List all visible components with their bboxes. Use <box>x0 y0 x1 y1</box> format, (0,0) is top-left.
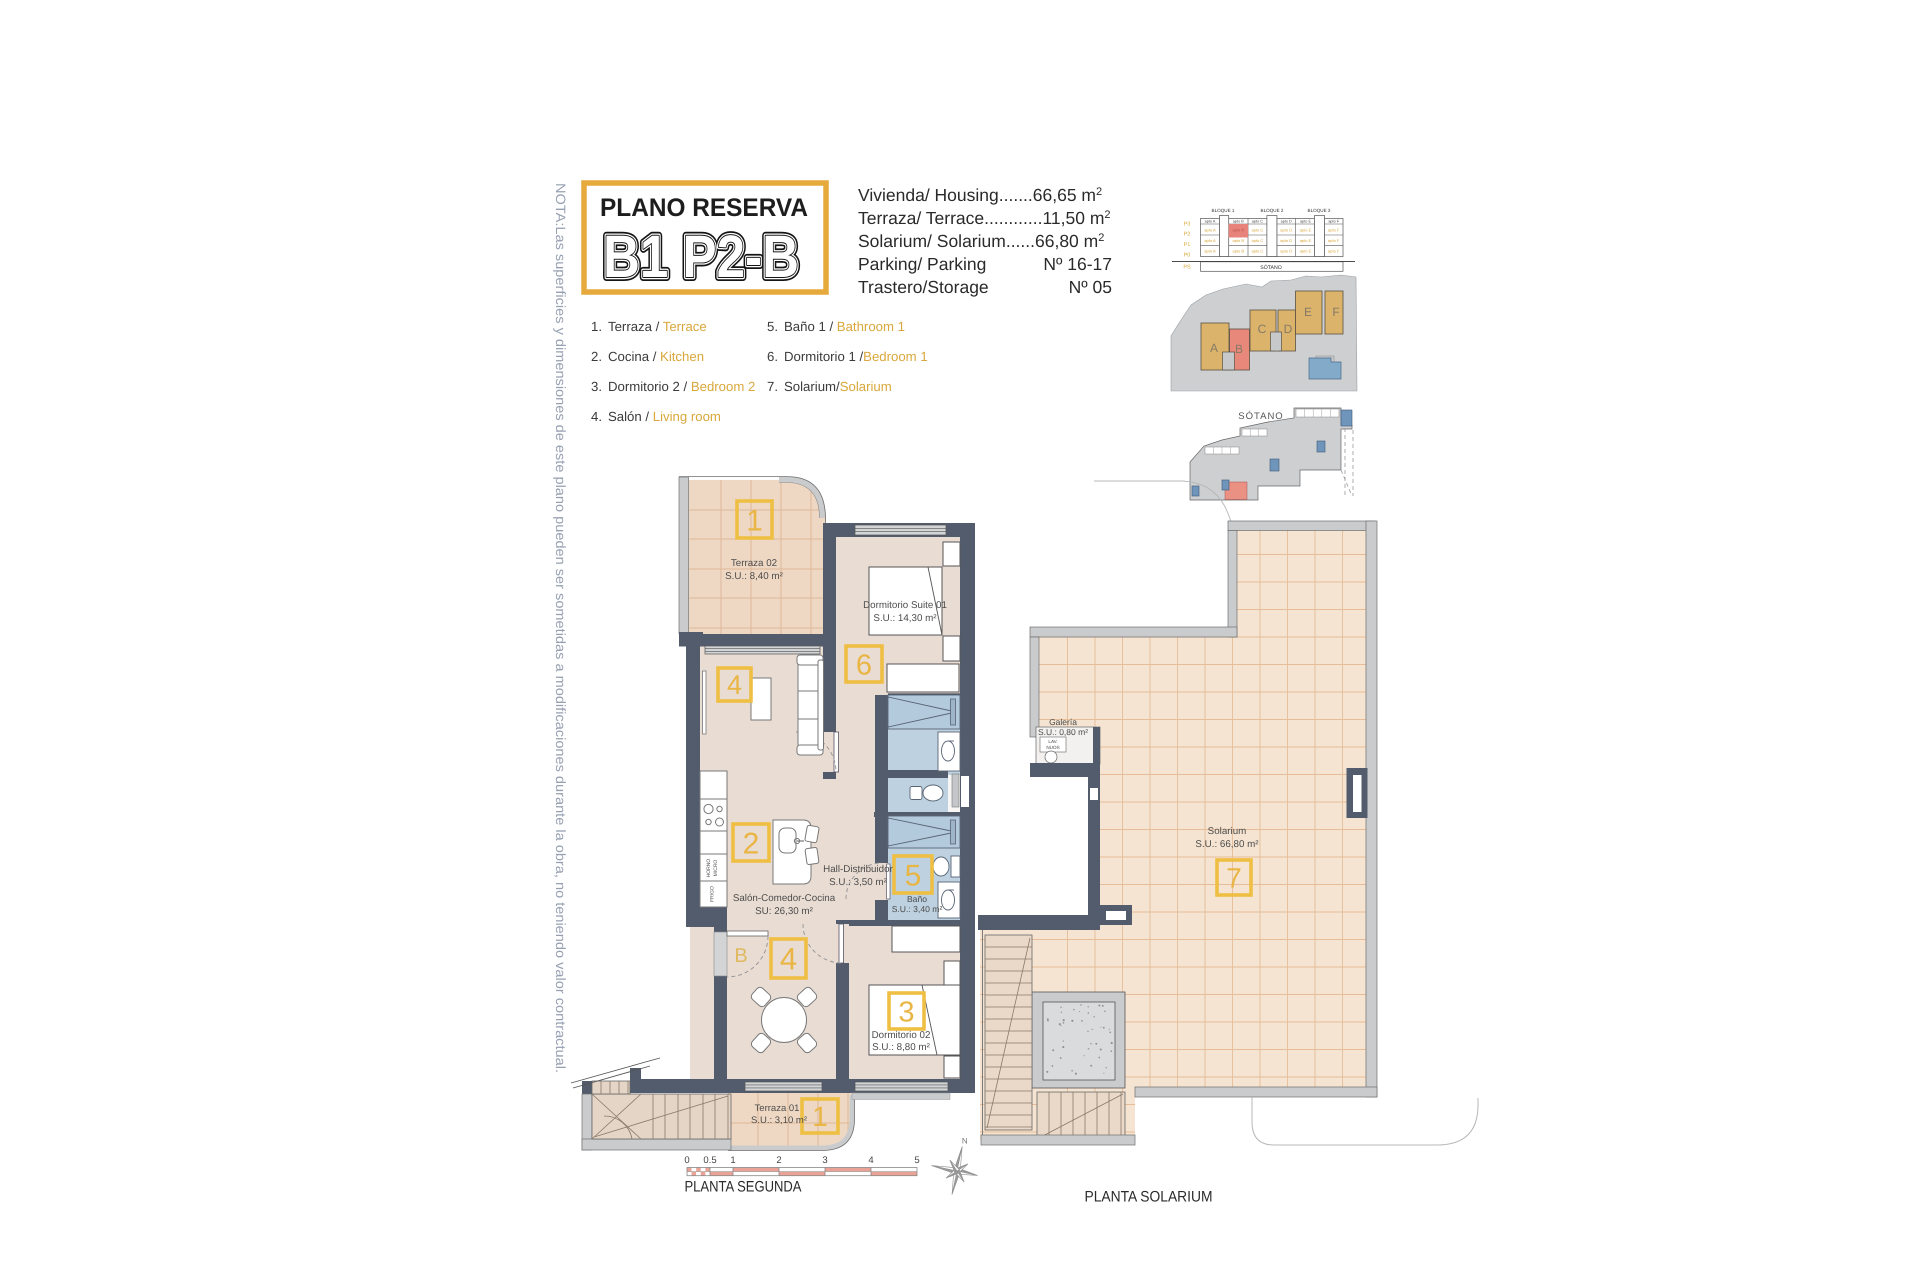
svg-text:apto F: apto F <box>1328 228 1340 233</box>
svg-text:Vivienda/ Housing.......66,65: Vivienda/ Housing.......66,65 m2 <box>858 185 1102 205</box>
svg-text:3: 3 <box>822 1155 827 1166</box>
svg-text:N: N <box>962 1137 968 1146</box>
svg-text:4: 4 <box>727 670 742 700</box>
svg-text:apto D: apto D <box>1280 249 1292 254</box>
svg-text:apto D: apto D <box>1281 220 1292 224</box>
svg-text:P0: P0 <box>1184 253 1191 259</box>
svg-text:HORNO: HORNO <box>706 859 712 878</box>
svg-text:Baño: Baño <box>907 894 927 904</box>
svg-text:Salón / Living room: Salón / Living room <box>608 409 721 424</box>
svg-text:S.U.: 8,40 m²: S.U.: 8,40 m² <box>725 571 783 582</box>
svg-text:P3: P3 <box>1184 222 1191 228</box>
svg-text:4.: 4. <box>591 409 602 424</box>
svg-text:MICRO: MICRO <box>713 860 719 877</box>
svg-text:Nº 16-17: Nº 16-17 <box>1043 254 1112 274</box>
svg-text:S.U.: 3,10 m²: S.U.: 3,10 m² <box>751 1115 807 1126</box>
svg-text:NOTA:Las superficies y dimensi: NOTA:Las superficies y dimensiones de es… <box>553 183 568 1073</box>
svg-text:7: 7 <box>1226 863 1242 894</box>
svg-text:Solarium/Solarium: Solarium/Solarium <box>784 379 892 394</box>
svg-text:Trastero/Storage: Trastero/Storage <box>858 277 989 297</box>
svg-text:LAV.: LAV. <box>1048 739 1057 744</box>
svg-text:BLOQUE 2: BLOQUE 2 <box>1261 208 1284 213</box>
svg-text:apto B: apto B <box>1233 249 1245 254</box>
svg-text:apto D: apto D <box>1280 228 1292 233</box>
svg-text:1: 1 <box>730 1155 735 1166</box>
svg-text:PLANTA SEGUNDA: PLANTA SEGUNDA <box>685 1179 803 1196</box>
svg-text:Dormitorio 2 / Bedroom 2: Dormitorio 2 / Bedroom 2 <box>608 379 755 394</box>
svg-text:Nº 05: Nº 05 <box>1069 277 1112 297</box>
svg-text:2: 2 <box>776 1155 781 1166</box>
svg-text:Terraza 01: Terraza 01 <box>755 1103 800 1114</box>
svg-text:apto A: apto A <box>1204 249 1216 254</box>
svg-text:B1 P2-B: B1 P2-B <box>603 223 799 290</box>
svg-text:2.: 2. <box>591 349 602 364</box>
svg-text:apto F: apto F <box>1328 220 1339 224</box>
svg-text:C: C <box>1258 322 1267 336</box>
svg-text:5.: 5. <box>767 319 778 334</box>
svg-text:apto B: apto B <box>1233 228 1245 233</box>
svg-text:apto C: apto C <box>1252 228 1264 233</box>
svg-text:Dormitorio 02: Dormitorio 02 <box>872 1030 931 1041</box>
svg-text:PLANO RESERVA: PLANO RESERVA <box>600 194 808 222</box>
svg-text:PS: PS <box>1183 265 1191 271</box>
svg-text:0: 0 <box>684 1155 689 1166</box>
svg-text:1.: 1. <box>591 319 602 334</box>
svg-text:Terraza/ Terrace............11: Terraza/ Terrace............11,50 m2 <box>858 208 1111 228</box>
svg-text:1: 1 <box>746 504 763 537</box>
svg-text:apto B: apto B <box>1233 238 1245 243</box>
svg-text:B: B <box>734 945 747 967</box>
svg-text:Solarium: Solarium <box>1208 826 1247 837</box>
svg-text:P2: P2 <box>1184 232 1191 238</box>
svg-text:1: 1 <box>812 1101 828 1132</box>
svg-text:SU: 26,30 m²: SU: 26,30 m² <box>755 906 813 917</box>
svg-text:3: 3 <box>898 996 914 1028</box>
svg-text:Hall-Distribuidor: Hall-Distribuidor <box>823 864 893 875</box>
svg-text:Terraza 02: Terraza 02 <box>731 558 777 569</box>
svg-text:Solarium/ Solarium......66,80: Solarium/ Solarium......66,80 m2 <box>858 231 1104 251</box>
svg-text:2: 2 <box>743 827 760 860</box>
svg-text:E: E <box>1304 305 1312 319</box>
svg-text:NUOS: NUOS <box>1046 745 1059 750</box>
svg-text:apto E: apto E <box>1300 228 1312 233</box>
svg-text:P1: P1 <box>1184 242 1191 248</box>
svg-text:apto E: apto E <box>1300 249 1312 254</box>
svg-text:apto F: apto F <box>1328 249 1340 254</box>
svg-text:4: 4 <box>780 942 797 977</box>
svg-text:FRIGO: FRIGO <box>710 886 716 902</box>
svg-text:F: F <box>1332 305 1339 319</box>
svg-text:0.5: 0.5 <box>703 1155 716 1166</box>
svg-text:S.U.: 8,80 m²: S.U.: 8,80 m² <box>872 1042 930 1053</box>
svg-text:apto E: apto E <box>1300 238 1312 243</box>
svg-text:S.U.: 66,80 m²: S.U.: 66,80 m² <box>1195 839 1259 850</box>
svg-text:apto D: apto D <box>1280 238 1292 243</box>
svg-text:apto C: apto C <box>1252 220 1263 224</box>
svg-text:apto A: apto A <box>1205 220 1216 224</box>
svg-text:apto A: apto A <box>1204 238 1216 243</box>
svg-text:apto C: apto C <box>1252 249 1264 254</box>
svg-text:BLOQUE 3: BLOQUE 3 <box>1308 208 1331 213</box>
svg-text:Galería: Galería <box>1049 717 1077 727</box>
svg-text:Dormitorio 1 /Bedroom 1: Dormitorio 1 /Bedroom 1 <box>784 349 928 364</box>
svg-text:PLANTA SOLARIUM: PLANTA SOLARIUM <box>1085 1189 1213 1206</box>
svg-text:Baño 1 / Bathroom 1: Baño 1 / Bathroom 1 <box>784 319 905 334</box>
svg-text:7.: 7. <box>767 379 778 394</box>
svg-text:apto E: apto E <box>1300 220 1311 224</box>
svg-text:S.U.: 0,80 m²: S.U.: 0,80 m² <box>1038 727 1088 737</box>
svg-text:Dormitorio Suite 01: Dormitorio Suite 01 <box>863 600 947 611</box>
svg-text:apto C: apto C <box>1252 238 1264 243</box>
svg-text:BLOQUE 1: BLOQUE 1 <box>1212 208 1235 213</box>
svg-text:Parking/ Parking: Parking/ Parking <box>858 254 986 274</box>
svg-text:Cocina / Kitchen: Cocina / Kitchen <box>608 349 704 364</box>
svg-text:B: B <box>1235 342 1243 356</box>
svg-text:4: 4 <box>868 1155 873 1166</box>
svg-text:D: D <box>1284 322 1293 336</box>
svg-text:apto F: apto F <box>1328 238 1340 243</box>
svg-text:Salón-Comedor-Cocina: Salón-Comedor-Cocina <box>733 893 836 904</box>
svg-text:6.: 6. <box>767 349 778 364</box>
svg-text:apto A: apto A <box>1204 228 1216 233</box>
svg-text:S.U.: 3,40 m²: S.U.: 3,40 m² <box>892 904 943 914</box>
svg-text:6: 6 <box>856 649 872 681</box>
svg-text:3.: 3. <box>591 379 602 394</box>
svg-text:apto B: apto B <box>1233 220 1244 224</box>
svg-text:5: 5 <box>905 859 922 892</box>
svg-text:A: A <box>1210 341 1218 355</box>
svg-text:SÓTANO: SÓTANO <box>1238 410 1283 422</box>
svg-text:Terraza / Terrace: Terraza / Terrace <box>608 319 707 334</box>
svg-text:S.U.: 3,50 m²: S.U.: 3,50 m² <box>829 877 887 888</box>
svg-text:SÓTANO: SÓTANO <box>1260 264 1282 271</box>
svg-text:S.U.: 14,30 m²: S.U.: 14,30 m² <box>873 613 937 624</box>
svg-text:5: 5 <box>914 1155 919 1166</box>
